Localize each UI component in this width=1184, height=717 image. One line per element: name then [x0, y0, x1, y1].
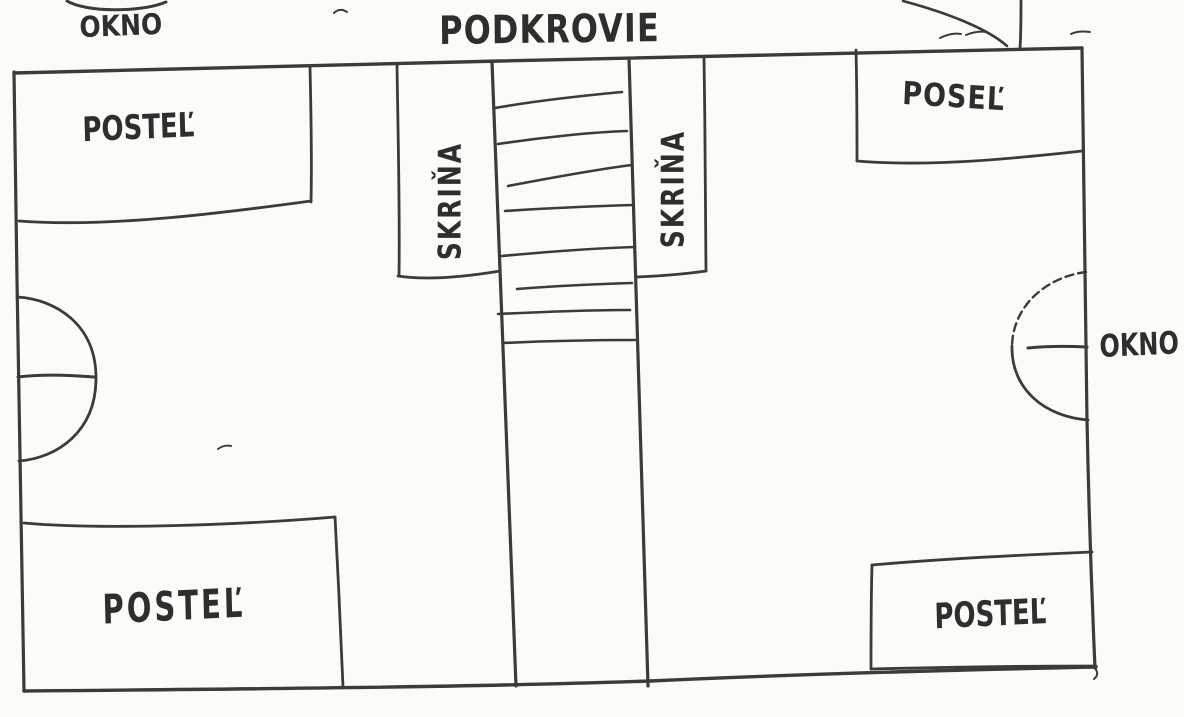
bed-top-right-bottom	[857, 151, 1082, 163]
bed-top-left-bottom	[19, 201, 311, 223]
staircase	[492, 58, 648, 686]
wardrobe-left-label: SKRIŇA	[434, 142, 465, 260]
door-swing-arc	[903, 1, 1007, 46]
window-left-sill	[18, 375, 94, 377]
bed-bottom-right-top	[872, 552, 1092, 565]
window-right-label: OKNO	[1099, 327, 1179, 362]
stair-wall-left	[492, 62, 516, 686]
wardrobe-left-side	[397, 65, 399, 276]
wardrobe-right-side	[704, 57, 706, 271]
outer-wall-left	[14, 72, 24, 691]
stair-wall-right	[629, 58, 648, 686]
bed-bottom-right-label: POSTEĽ	[934, 595, 1047, 635]
entry-door	[903, 1, 1090, 48]
wardrobe-right-bottom	[637, 271, 706, 277]
floor-plan-scan: PODKROVIE OKNO POSTEĽ POSEĽ POSTEĽ POSTE…	[0, 0, 1184, 717]
window-right-arc-upper	[1012, 272, 1086, 346]
stair-tread-1	[495, 92, 622, 108]
wardrobe-left-bottom	[398, 271, 500, 278]
bed-bottom-right-side	[871, 565, 872, 669]
window-right-arc-lower	[1012, 346, 1088, 420]
stair-tread-3	[508, 165, 632, 186]
wall-dash-3	[1071, 31, 1090, 34]
window-right	[1012, 272, 1088, 420]
corner-tail-mark	[1094, 668, 1097, 679]
pencil-tick-left-room	[218, 446, 231, 449]
bed-top-right-side	[856, 50, 857, 161]
bed-bottom-left-top	[24, 517, 335, 526]
plan-title: PODKROVIE	[439, 8, 660, 50]
pencil-tick-near-title	[334, 10, 347, 13]
wall-dash-2	[966, 32, 986, 35]
wall-dash-1	[940, 34, 961, 38]
outer-wall-bottom	[24, 667, 1096, 691]
stair-tread-5	[502, 247, 635, 256]
outer-wall-right	[1082, 48, 1095, 668]
bed-top-left-label: POSTEĽ	[82, 109, 195, 148]
stair-tread-8	[503, 340, 635, 343]
window-right-sill	[1028, 346, 1087, 348]
stair-tread-2	[498, 131, 627, 144]
window-left	[17, 297, 96, 461]
wardrobe-right-label: SKRIŇA	[657, 130, 688, 248]
stair-tread-4	[505, 205, 633, 211]
bed-top-right-label: POSEĽ	[902, 78, 1006, 116]
window-left-arc	[17, 297, 96, 461]
bed-top-left-side	[310, 67, 311, 202]
stair-tread-6	[517, 283, 632, 289]
bed-bottom-left-side	[335, 517, 343, 687]
door-panel-line	[1020, 1, 1021, 48]
window-top-label: OKNO	[79, 10, 163, 42]
bed-bottom-left-label: POSTEĽ	[102, 583, 246, 631]
stair-tread-7	[498, 310, 630, 314]
pencil-marks	[218, 10, 347, 449]
